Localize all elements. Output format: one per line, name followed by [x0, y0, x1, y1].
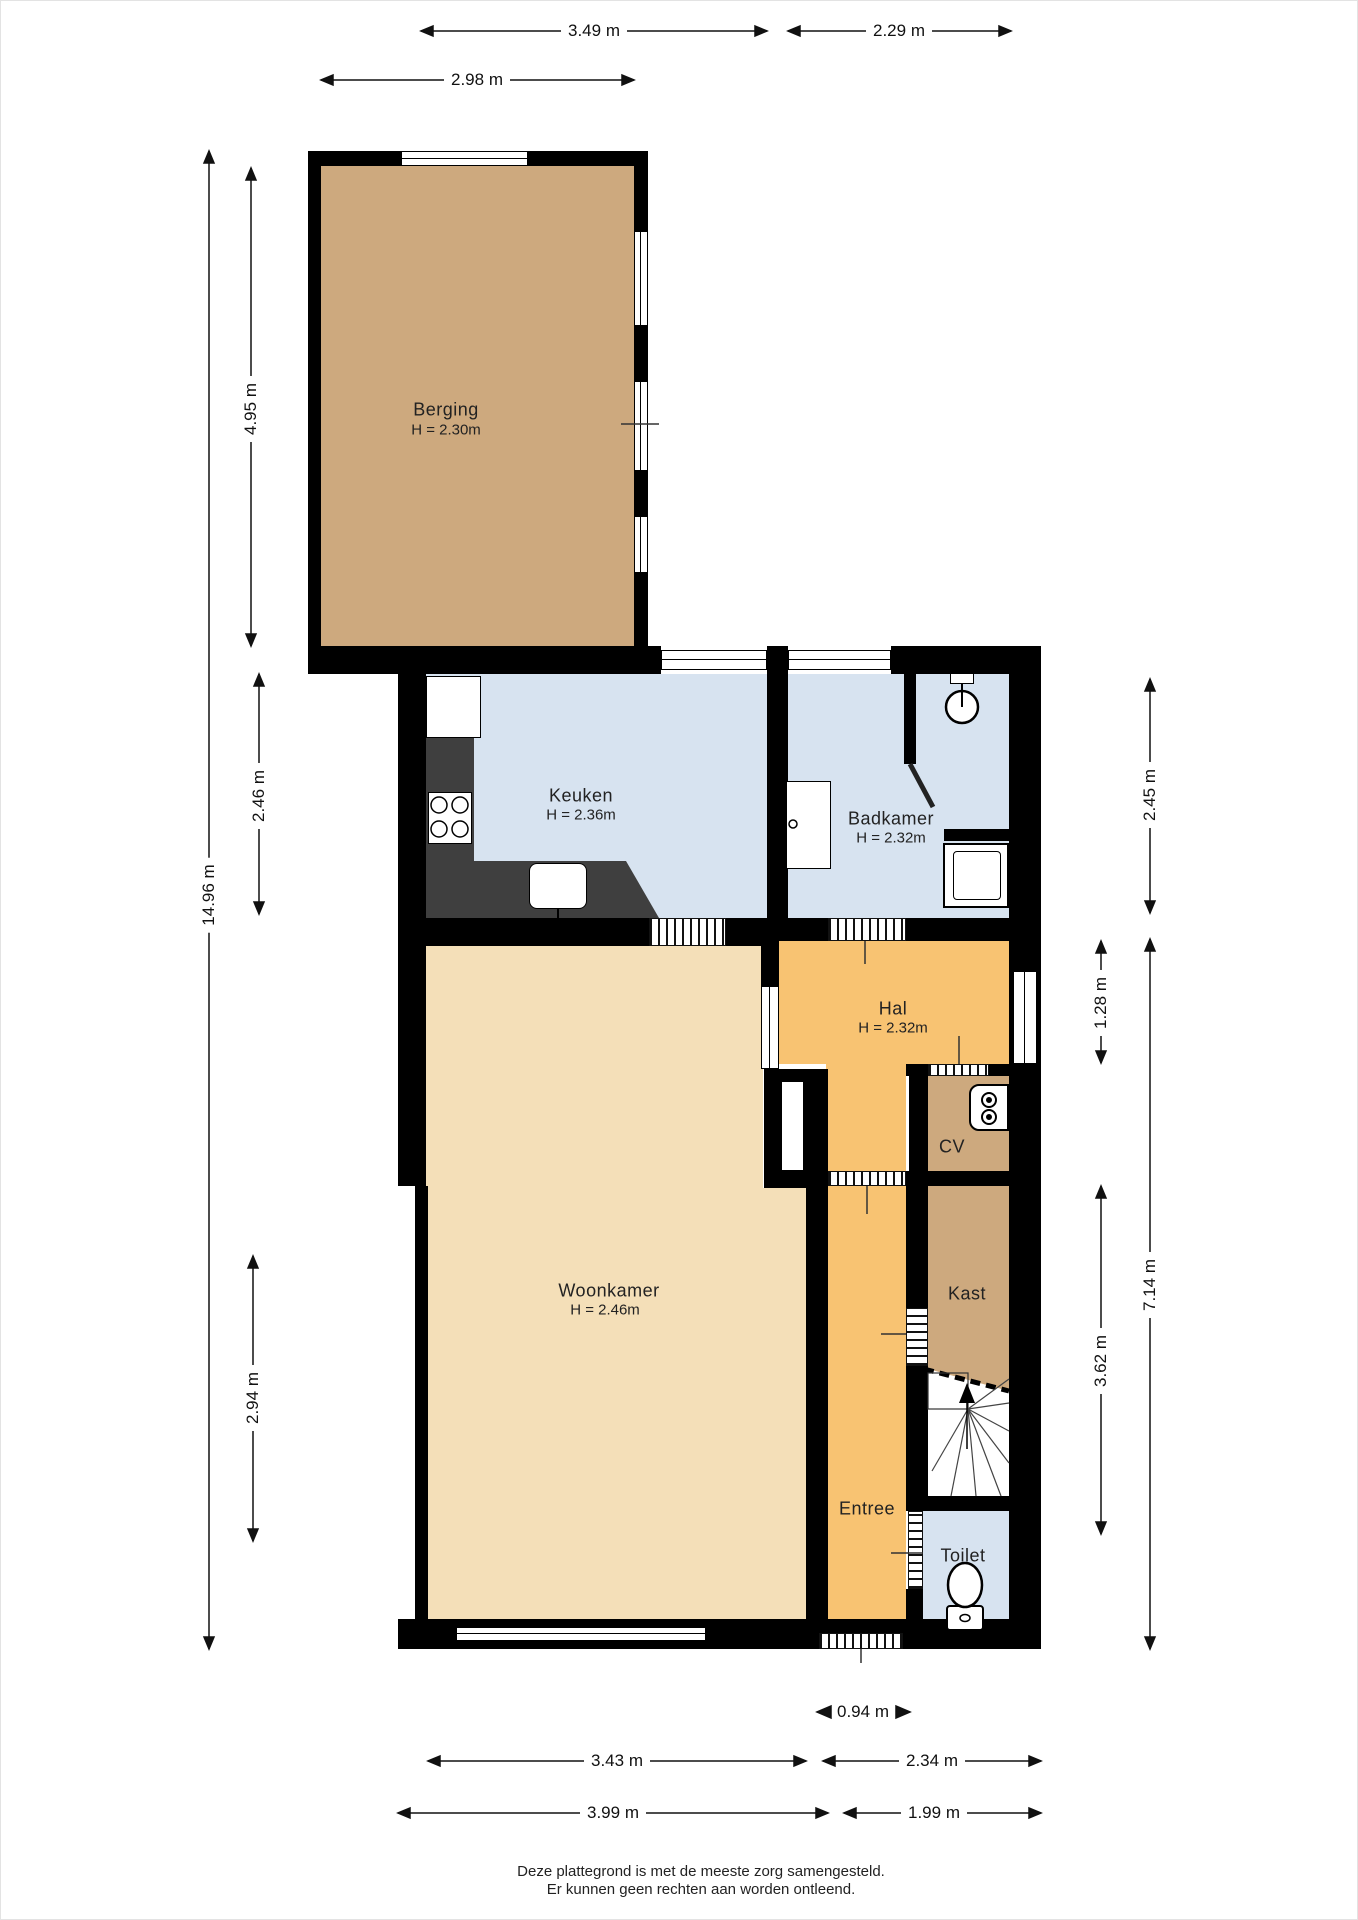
label-hal: Hal: [879, 999, 908, 1020]
dimension-arrows: [204, 26, 1155, 1818]
dim-right-714: 7.14 m: [1140, 1252, 1160, 1318]
dim-bottom-399: 3.99 m: [580, 1803, 646, 1823]
label-hal-height: H = 2.32m: [858, 1020, 928, 1037]
dim-right-245: 2.45 m: [1140, 762, 1160, 828]
label-berging-height: H = 2.30m: [411, 422, 481, 439]
dim-left-495: 4.95 m: [241, 376, 261, 442]
plan-linework: [1, 1, 1358, 1920]
dim-top-229: 2.29 m: [866, 21, 932, 41]
label-kast: Kast: [948, 1284, 986, 1305]
disclaimer-line-2: Er kunnen geen rechten aan worden ontlee…: [547, 1881, 856, 1898]
label-woonkamer: Woonkamer: [558, 1281, 659, 1302]
dim-right-128: 1.28 m: [1091, 970, 1111, 1036]
dim-left-1496: 14.96 m: [199, 857, 219, 932]
label-entree: Entree: [839, 1499, 895, 1520]
dim-bottom-199: 1.99 m: [901, 1803, 967, 1823]
dim-bottom-234: 2.34 m: [899, 1751, 965, 1771]
badkamer-door-swing: [910, 764, 933, 807]
toilet-bowl-wc: [948, 1563, 982, 1607]
floorplan-page: Berging H = 2.30m Keuken H = 2.36m Badka…: [0, 0, 1358, 1920]
label-woonkamer-height: H = 2.46m: [570, 1302, 640, 1319]
dim-left-294: 2.94 m: [243, 1365, 263, 1431]
disclaimer-line-1: Deze plattegrond is met de meeste zorg s…: [517, 1863, 885, 1880]
dim-bottom-094: 0.94 m: [837, 1702, 889, 1722]
label-badkamer: Badkamer: [848, 809, 934, 830]
stairs-up-arrow: [959, 1383, 975, 1403]
label-badkamer-height: H = 2.32m: [856, 830, 926, 847]
label-keuken-height: H = 2.36m: [546, 807, 616, 824]
counter-diagonal: [626, 861, 659, 918]
label-berging: Berging: [413, 400, 479, 421]
washbasin-tap: [789, 820, 797, 828]
label-keuken: Keuken: [549, 786, 613, 807]
dim-top-298: 2.98 m: [444, 70, 510, 90]
dim-right-362: 3.62 m: [1091, 1328, 1111, 1394]
dim-left-246: 2.46 m: [249, 763, 269, 829]
dim-top-349: 3.49 m: [561, 21, 627, 41]
label-cv: CV: [939, 1137, 965, 1158]
toilet-button-wc: [960, 1615, 970, 1622]
label-toilet: Toilet: [940, 1546, 985, 1567]
cv-boiler-detail: [982, 1093, 996, 1124]
dim-bottom-343: 3.43 m: [584, 1751, 650, 1771]
stove-burners: [431, 797, 468, 837]
